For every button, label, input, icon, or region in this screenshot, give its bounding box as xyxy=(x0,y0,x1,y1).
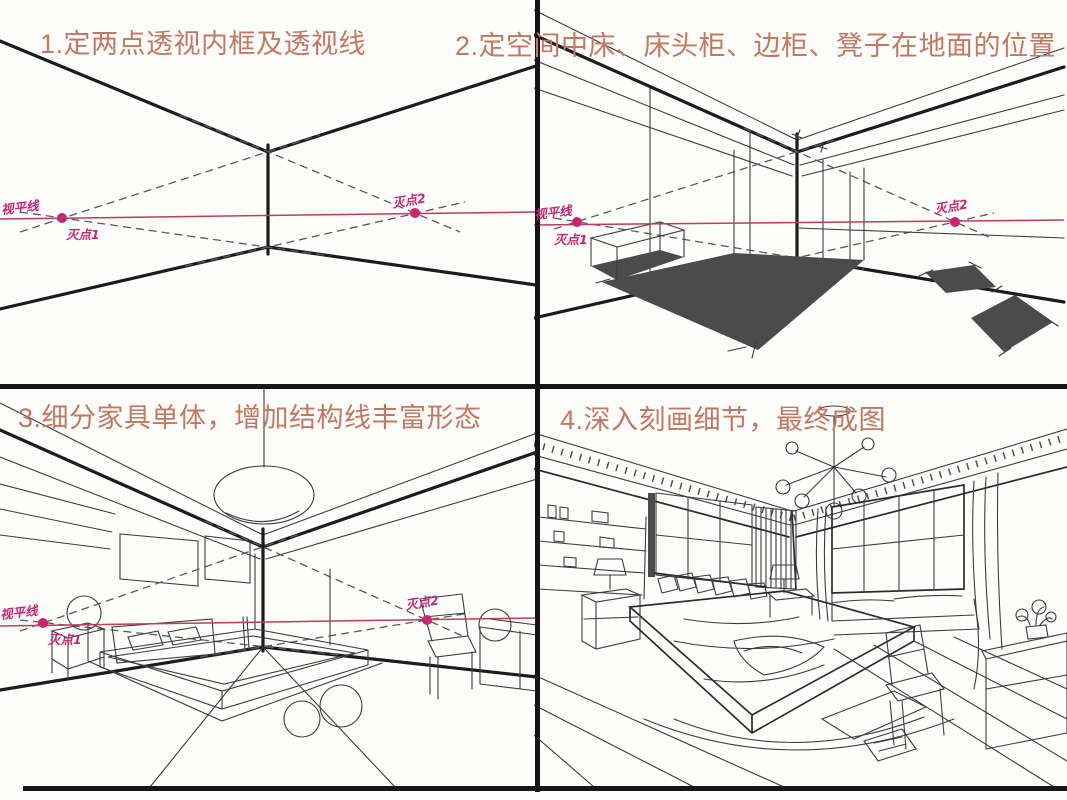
panel-step-4 xyxy=(534,389,1067,790)
bottom-border xyxy=(23,786,1067,791)
wall-shelves xyxy=(538,505,646,599)
vanishing-point-1-dot xyxy=(57,213,67,223)
bench-footprint xyxy=(971,295,1053,352)
pouf-2 xyxy=(320,685,362,727)
wall-top-right-edge xyxy=(263,452,537,547)
panel-4-sketch xyxy=(534,389,1067,790)
step-4-title: 4.深入刻画细节，最终成图 xyxy=(560,398,886,437)
wall-top-right-edge xyxy=(797,67,1064,152)
panel-step-3: 视平线 灭点1 灭点2 xyxy=(0,389,537,790)
panel-3-sketch xyxy=(0,389,537,790)
step-2-title: 2.定空间中床、床头柜、边柜、凳子在地面的位置 xyxy=(455,24,1056,63)
floor-right-edge xyxy=(263,647,537,677)
horizon-line xyxy=(0,618,537,626)
vanishing-point-2-dot xyxy=(410,208,420,218)
potted-plant xyxy=(1016,600,1056,639)
vanishing-point-1-dot xyxy=(572,217,582,227)
step-1-title: 1.定两点透视内框及透视线 xyxy=(40,22,366,61)
right-wall-circle xyxy=(479,609,511,641)
floor-planks xyxy=(534,637,1067,787)
chair-seat xyxy=(428,636,476,657)
pouf-1 xyxy=(284,701,320,737)
vp1-label: 灭点1 xyxy=(66,224,100,243)
sideboard xyxy=(982,633,1067,749)
vp1-label: 灭点1 xyxy=(554,229,588,248)
window xyxy=(832,485,964,593)
vanishing-point-1-dot xyxy=(38,618,48,628)
wall-frame-2 xyxy=(205,536,250,583)
desk xyxy=(480,619,537,691)
tutorial-sheet: 视平线 灭点1 灭点2 xyxy=(0,0,1067,800)
vanishing-point-2-dot xyxy=(422,615,432,625)
horizon-line xyxy=(534,220,1064,225)
vanishing-point-2-dot xyxy=(950,217,960,227)
wall-frame-1 xyxy=(120,534,198,586)
horizontal-divider xyxy=(0,384,1067,389)
vertical-divider xyxy=(535,0,540,792)
step-3-title: 3.细分家具单体，增加结构线丰富形态 xyxy=(18,396,482,435)
vp1-label: 灭点1 xyxy=(48,629,82,648)
headboard-panel xyxy=(656,493,752,585)
ceiling-lamp xyxy=(214,466,314,524)
